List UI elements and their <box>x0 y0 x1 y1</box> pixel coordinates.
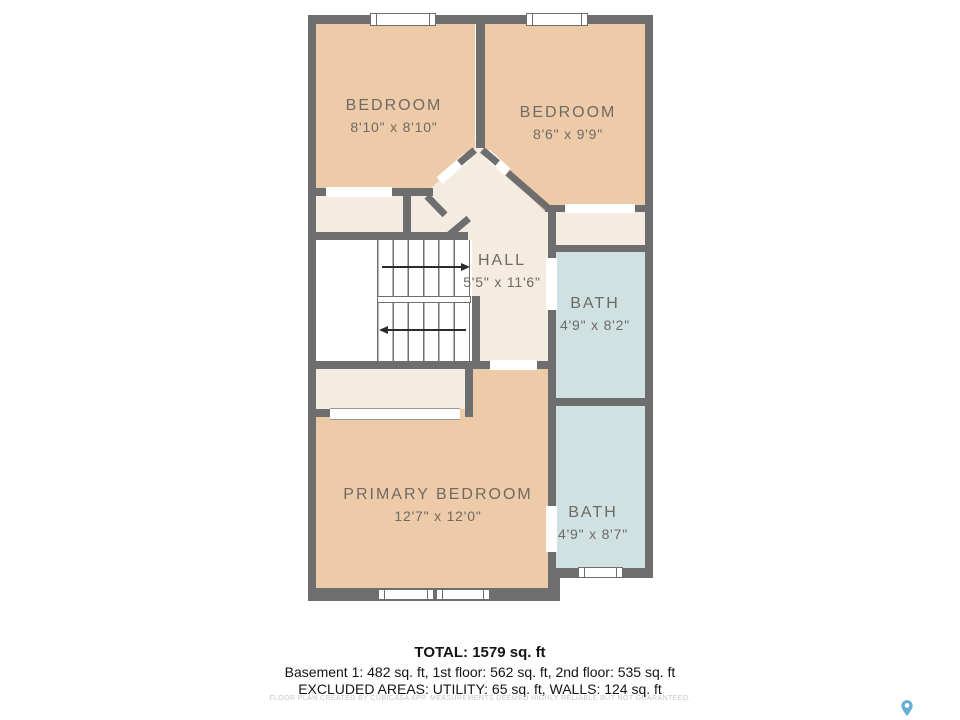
room-label-hall: HALL 5'5" x 11'6" <box>463 252 541 290</box>
wall-primary-closet-bottom <box>308 409 330 417</box>
room-dimensions: 4'9" x 8'2" <box>560 317 630 333</box>
wall-closet1-right <box>403 196 411 232</box>
stair-lower-run <box>377 303 470 361</box>
wall-bath-divider <box>548 398 645 406</box>
floor-areas-text: Basement 1: 482 sq. ft, 1st floor: 562 s… <box>0 664 960 680</box>
door-opening-primary-bedroom <box>490 360 537 370</box>
door-opening-bath1 <box>546 258 557 310</box>
window-bedroom2 <box>526 13 588 26</box>
floor-plan-canvas: BEDROOM 8'10" x 8'10" BEDROOM 8'6" x 9'9… <box>0 0 960 720</box>
bedroom-2-closet-floor <box>556 212 645 247</box>
wall-exterior-right <box>645 15 653 578</box>
area-summary: TOTAL: 1579 sq. ft Basement 1: 482 sq. f… <box>0 644 960 698</box>
primary-closet-floor <box>316 368 468 409</box>
room-label-bedroom2: BEDROOM 8'6" x 9'9" <box>520 104 617 142</box>
room-name: BEDROOM <box>520 104 617 122</box>
room-dimensions: 4'9" x 8'7" <box>558 526 628 542</box>
door-opening-closet1 <box>326 187 392 197</box>
door-opening-bath2 <box>546 506 557 552</box>
room-dimensions: 5'5" x 11'6" <box>463 274 541 290</box>
disclaimer-text: FLOOR PLAN CREATED BY CUBICASA APP. MEAS… <box>0 695 960 702</box>
stair-upper-run <box>377 240 470 297</box>
bath-2-floor <box>556 406 645 568</box>
stair-landing-divider <box>377 296 471 303</box>
stair-down-arrowhead-icon <box>379 326 388 334</box>
room-label-primary-bedroom: PRIMARY BEDROOM 12'7" x 12'0" <box>343 486 532 524</box>
room-name: HALL <box>463 252 541 270</box>
room-dimensions: 8'6" x 9'9" <box>520 126 617 142</box>
wall-bedroom1-bottom-left <box>308 188 326 196</box>
room-name: BATH <box>558 504 628 522</box>
door-opening-primary-closet <box>330 408 460 420</box>
room-label-bath2: BATH 4'9" x 8'7" <box>558 504 628 542</box>
room-label-bath1: BATH 4'9" x 8'2" <box>560 295 630 333</box>
wall-exterior-left <box>308 15 316 601</box>
stair-up-arrow-icon <box>382 266 462 268</box>
window-primary-left <box>378 589 434 600</box>
window-primary-right <box>436 589 490 600</box>
wall-stairs-bottom <box>308 361 490 369</box>
total-area-text: TOTAL: 1579 sq. ft <box>0 644 960 661</box>
wall-stairs-right <box>472 296 480 369</box>
stair-down-arrow-icon <box>388 329 466 331</box>
room-name: BEDROOM <box>346 97 443 115</box>
room-label-bedroom1: BEDROOM 8'10" x 8'10" <box>346 97 443 135</box>
room-dimensions: 8'10" x 8'10" <box>346 119 443 135</box>
window-bedroom1 <box>370 13 436 26</box>
room-dimensions: 12'7" x 12'0" <box>343 508 532 524</box>
wall-primary-closet-right <box>465 368 473 417</box>
cubicasa-pin-icon <box>900 699 914 717</box>
door-opening-closet2 <box>565 204 635 213</box>
window-bath2 <box>578 567 623 578</box>
wall-hall-right-mid <box>548 310 556 506</box>
room-name: PRIMARY BEDROOM <box>343 486 532 504</box>
room-name: BATH <box>560 295 630 313</box>
wall-bath1-top <box>548 245 645 252</box>
wall-hall-right-lower <box>548 552 556 578</box>
wall-bedroom-divider <box>476 23 485 148</box>
wall-exterior-bottom-primary <box>308 588 560 601</box>
